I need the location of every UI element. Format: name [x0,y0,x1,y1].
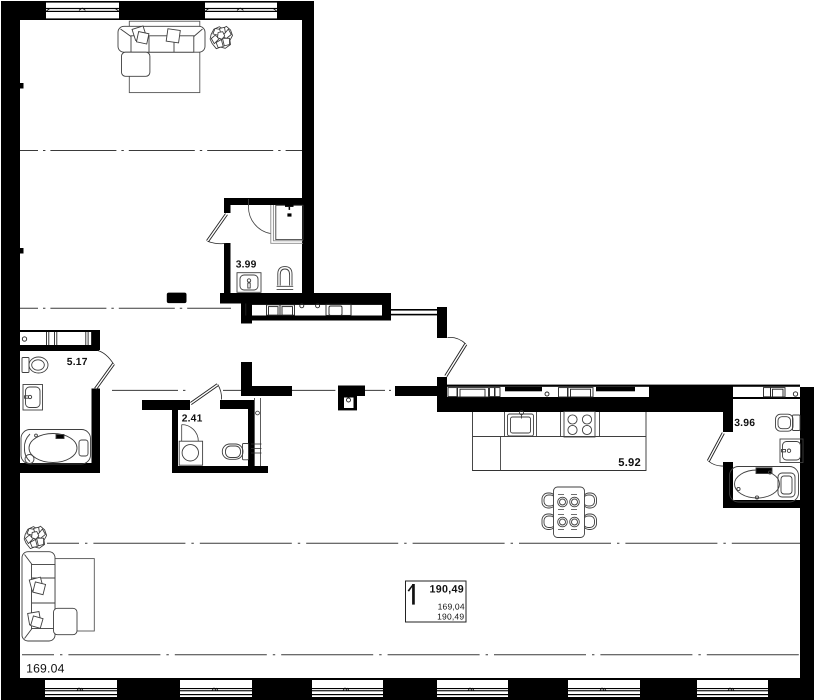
svg-text:3.99: 3.99 [236,259,257,270]
svg-text:2.41: 2.41 [182,414,203,425]
svg-text:3.96: 3.96 [734,418,755,429]
svg-text:5.17: 5.17 [67,357,88,368]
svg-text:190,49: 190,49 [430,583,465,595]
svg-text:190,49: 190,49 [437,611,464,621]
svg-text:169,04: 169,04 [438,602,465,612]
svg-text:5.92: 5.92 [618,457,641,469]
svg-text:169.04: 169.04 [26,662,64,676]
